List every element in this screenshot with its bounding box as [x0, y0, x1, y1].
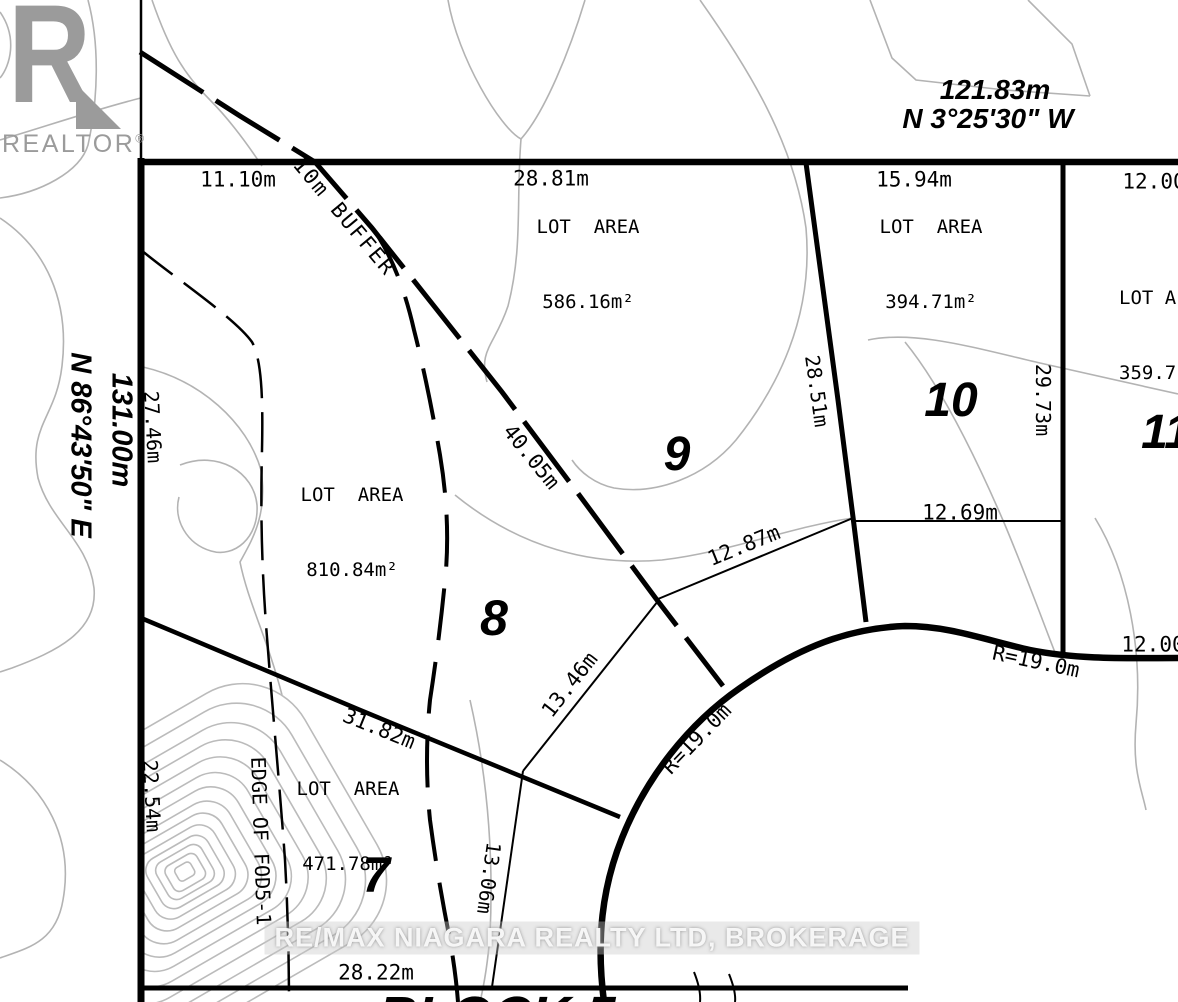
survey-plan: R REALTOR® 121.83m N 3°25'30" W 131.00m …: [0, 0, 1178, 1002]
dim-11-10m: 11.10m: [200, 170, 276, 191]
lot9-number: 9: [664, 431, 691, 479]
dim-12-69m: 12.69m: [922, 503, 998, 524]
dim-27-46m: 27.46m: [141, 390, 165, 463]
boundary-lines: [138, 0, 1178, 1002]
top-boundary-bearing: N 3°25'30" W: [902, 105, 1073, 133]
top-boundary-length: 121.83m: [940, 76, 1051, 104]
block-label: BLOCK 5: [378, 985, 615, 1002]
edge-of-fod-label: EDGE OF FOD5-1: [248, 756, 274, 925]
dim-12-00m-right: 12.00: [1121, 635, 1178, 656]
lot10-number: 10: [924, 377, 977, 425]
realtor-logo-text: REALTOR®: [2, 130, 147, 159]
brokerage-watermark: RE/MAX NIAGARA REALTY LTD, BROKERAGE: [264, 922, 919, 955]
dim-28-22m: 28.22m: [338, 963, 414, 984]
dim-29-73m: 29.73m: [1033, 364, 1053, 436]
line-13-46: [523, 601, 658, 771]
lot8-number: 8: [480, 593, 508, 643]
realtor-logo-triangle: [76, 84, 122, 130]
plan-linework: [0, 0, 1178, 1002]
dim-12-00m-top: 12.00: [1122, 172, 1178, 193]
lot8-area: LOT AREA 810.84m²: [301, 433, 404, 633]
realtor-logo: R REALTOR®: [0, 0, 145, 165]
lot11-number: 11: [1141, 409, 1178, 457]
dim-22-54m: 22.54m: [140, 759, 164, 832]
boundary-lot8-9: [140, 52, 723, 686]
left-boundary-bearing: N 86°43'50" E: [66, 352, 95, 537]
lot7-number: 7: [362, 850, 390, 900]
lot10-area: LOT AREA 394.71m²: [880, 165, 983, 365]
lot9-area: LOT AREA 586.16m²: [537, 165, 640, 365]
left-boundary-length: 131.00m: [107, 373, 136, 488]
